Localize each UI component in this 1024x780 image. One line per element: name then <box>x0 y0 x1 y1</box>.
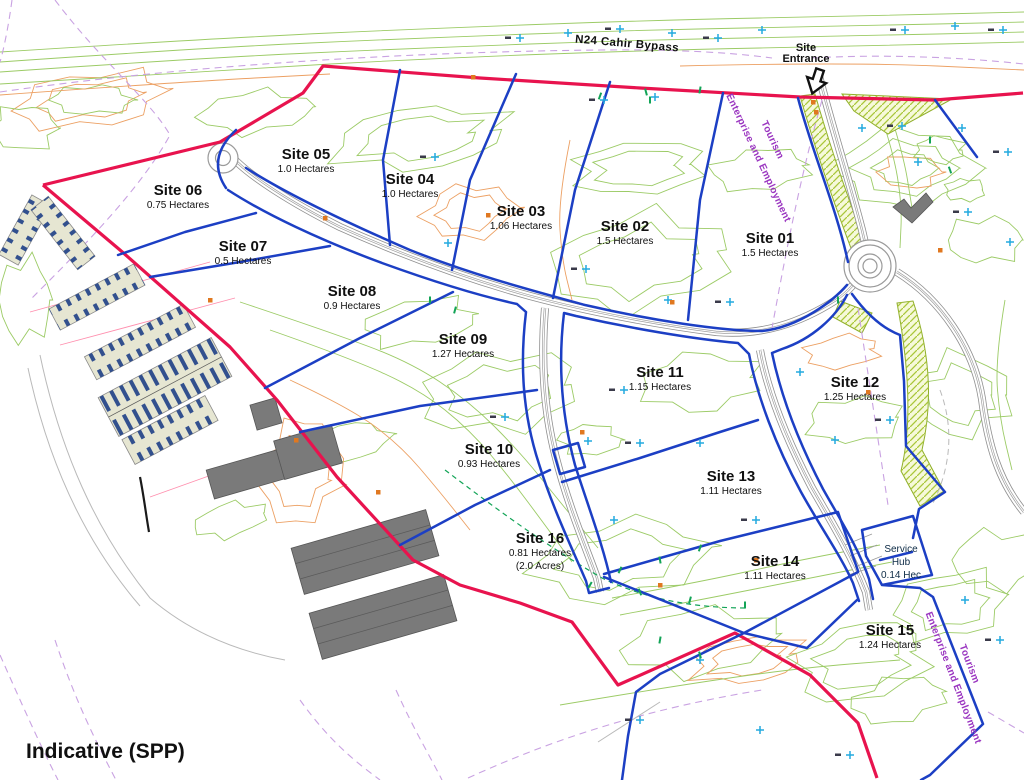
site-name: Site 07 <box>215 238 272 255</box>
site-area: 0.93 Hectares <box>458 458 520 471</box>
site-area-acres: (2.0 Acres) <box>509 560 571 573</box>
site-name: Site 02 <box>597 218 654 235</box>
site-label: Site 041.0 Hectares <box>382 171 439 201</box>
site-area: 1.5 Hectares <box>742 247 799 260</box>
site-label: Site 091.27 Hectares <box>432 331 494 361</box>
site-plan-map: N24 Cahir Bypass Site Entrance Tourism E… <box>0 0 1024 780</box>
drawing-title: Indicative (SPP) <box>26 740 185 764</box>
site-name: Site 10 <box>458 441 520 458</box>
site-label: Site 031.06 Hectares <box>490 203 552 233</box>
gray-building-chevron <box>893 193 933 223</box>
site-label: Site 100.93 Hectares <box>458 441 520 471</box>
site-label: Site 070.5 Hectares <box>215 238 272 268</box>
site-name: Site 11 <box>629 364 691 381</box>
site-name: Site 03 <box>490 203 552 220</box>
site-area: 0.81 Hectares <box>509 547 571 560</box>
site-label: Site 160.81 Hectares(2.0 Acres) <box>509 530 571 573</box>
site-entrance-label: Site Entrance <box>782 43 829 65</box>
site-area: 1.06 Hectares <box>490 220 552 233</box>
site-label: Site 021.5 Hectares <box>597 218 654 248</box>
site-label: Site 151.24 Hectares <box>859 622 921 652</box>
site-name: Site 01 <box>742 230 799 247</box>
site-area: 1.15 Hectares <box>629 381 691 394</box>
service-hub-label: Service Hub 0.14 Hec <box>881 543 921 582</box>
holiday-park-row <box>49 264 145 330</box>
site-label: Site 141.11 Hectares <box>744 553 806 583</box>
site-area: 0.5 Hectares <box>215 255 272 268</box>
site-label: Site 060.75 Hectares <box>147 182 209 212</box>
site-area: 1.5 Hectares <box>597 235 654 248</box>
site-label: Site 080.9 Hectares <box>324 283 381 313</box>
site-area: 1.27 Hectares <box>432 348 494 361</box>
site-name: Site 04 <box>382 171 439 188</box>
site-area: 1.25 Hectares <box>824 391 886 404</box>
site-label: Site 111.15 Hectares <box>629 364 691 394</box>
site-name: Site 16 <box>509 530 571 547</box>
site-area: 0.9 Hectares <box>324 300 381 313</box>
site-area: 1.11 Hectares <box>744 570 806 583</box>
site-label: Site 121.25 Hectares <box>824 374 886 404</box>
site-name: Site 05 <box>278 146 335 163</box>
site-name: Site 15 <box>859 622 921 639</box>
site-area: 1.0 Hectares <box>278 163 335 176</box>
site-label: Site 131.11 Hectares <box>700 468 762 498</box>
gray-hall-building <box>309 575 457 660</box>
site-area: 0.75 Hectares <box>147 199 209 212</box>
site-name: Site 08 <box>324 283 381 300</box>
site-label: Site 011.5 Hectares <box>742 230 799 260</box>
site-name: Site 06 <box>147 182 209 199</box>
site-name: Site 14 <box>744 553 806 570</box>
site-name: Site 13 <box>700 468 762 485</box>
site-area: 1.24 Hectares <box>859 639 921 652</box>
site-name: Site 12 <box>824 374 886 391</box>
site-label: Site 051.0 Hectares <box>278 146 335 176</box>
site-area: 1.0 Hectares <box>382 188 439 201</box>
site-area: 1.11 Hectares <box>700 485 762 498</box>
site-name: Site 09 <box>432 331 494 348</box>
